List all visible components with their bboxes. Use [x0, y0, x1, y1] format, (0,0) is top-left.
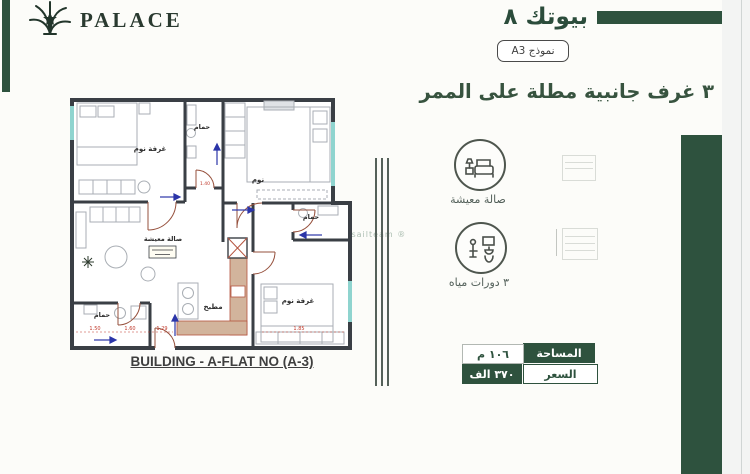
dimension-text: 1.85	[293, 326, 304, 332]
area-value-cell: ١٠٦ م	[462, 344, 524, 364]
feature-living-circle	[454, 139, 506, 191]
room-label-bedroom-br: غرفة نوم	[282, 297, 315, 305]
sketch-cabinet-2	[562, 228, 598, 260]
area-label-cell: المساحة	[523, 343, 595, 363]
sofa-icon	[462, 147, 498, 183]
room-label-kitchen: مطبخ	[203, 303, 222, 311]
right-edge-line	[741, 0, 742, 474]
divider-line-1	[375, 158, 377, 386]
price-value-cell: ٣٧٠ الف	[462, 364, 522, 384]
dimension-text: 1.29	[156, 326, 167, 332]
model-badge: نموذج A3	[497, 40, 569, 62]
feature-baths-circle	[455, 222, 507, 274]
price-label-cell: السعر	[523, 364, 598, 384]
dimension-text: 1.40	[200, 181, 210, 187]
room-label-bath-top: حمام	[194, 123, 211, 131]
room-label-bath-mid: حمام	[303, 213, 320, 221]
living-note-box	[149, 246, 176, 258]
sketch-divider-line	[556, 229, 557, 256]
room-label-living: صالة معيشة	[144, 235, 182, 243]
right-accent-block	[681, 135, 722, 474]
room-label-bath-bl: حمام	[94, 311, 111, 319]
room-label-bedroom-tr: نوم	[252, 176, 265, 184]
floor-plan: 1.50 1.60 1.29 1.85 1.40 غرفة نوم حمام ن…	[62, 92, 364, 358]
floor-plan-caption: BUILDING - A-FLAT NO (A-3)	[92, 354, 352, 369]
feature-baths-label: ٣ دورات مياه	[424, 276, 534, 289]
headline: ٣ غرف جانبية مطلة على الممر	[419, 80, 714, 103]
dimension-text: 1.50	[89, 326, 100, 332]
divider-line-2	[381, 158, 383, 386]
right-edge-strip	[722, 0, 750, 474]
flyer: PALACE بيوتك ٨ نموذج A3 ٣ غرف جانبية مطل…	[0, 0, 750, 474]
left-accent-bar	[2, 0, 10, 92]
divider-line-3	[387, 158, 389, 386]
room-label-bedroom-tl: غرفة نوم	[134, 145, 167, 153]
dimension-text: 1.60	[124, 326, 135, 332]
feature-living-label: صالة معيشة	[423, 193, 533, 206]
palace-logo-icon	[26, 0, 74, 40]
arabic-wordmark: بيوتك ٨	[503, 4, 588, 30]
toilet-icon	[463, 230, 499, 266]
sketch-cabinet-1	[562, 155, 596, 181]
palace-wordmark: PALACE	[80, 8, 183, 33]
shaft	[228, 238, 247, 258]
